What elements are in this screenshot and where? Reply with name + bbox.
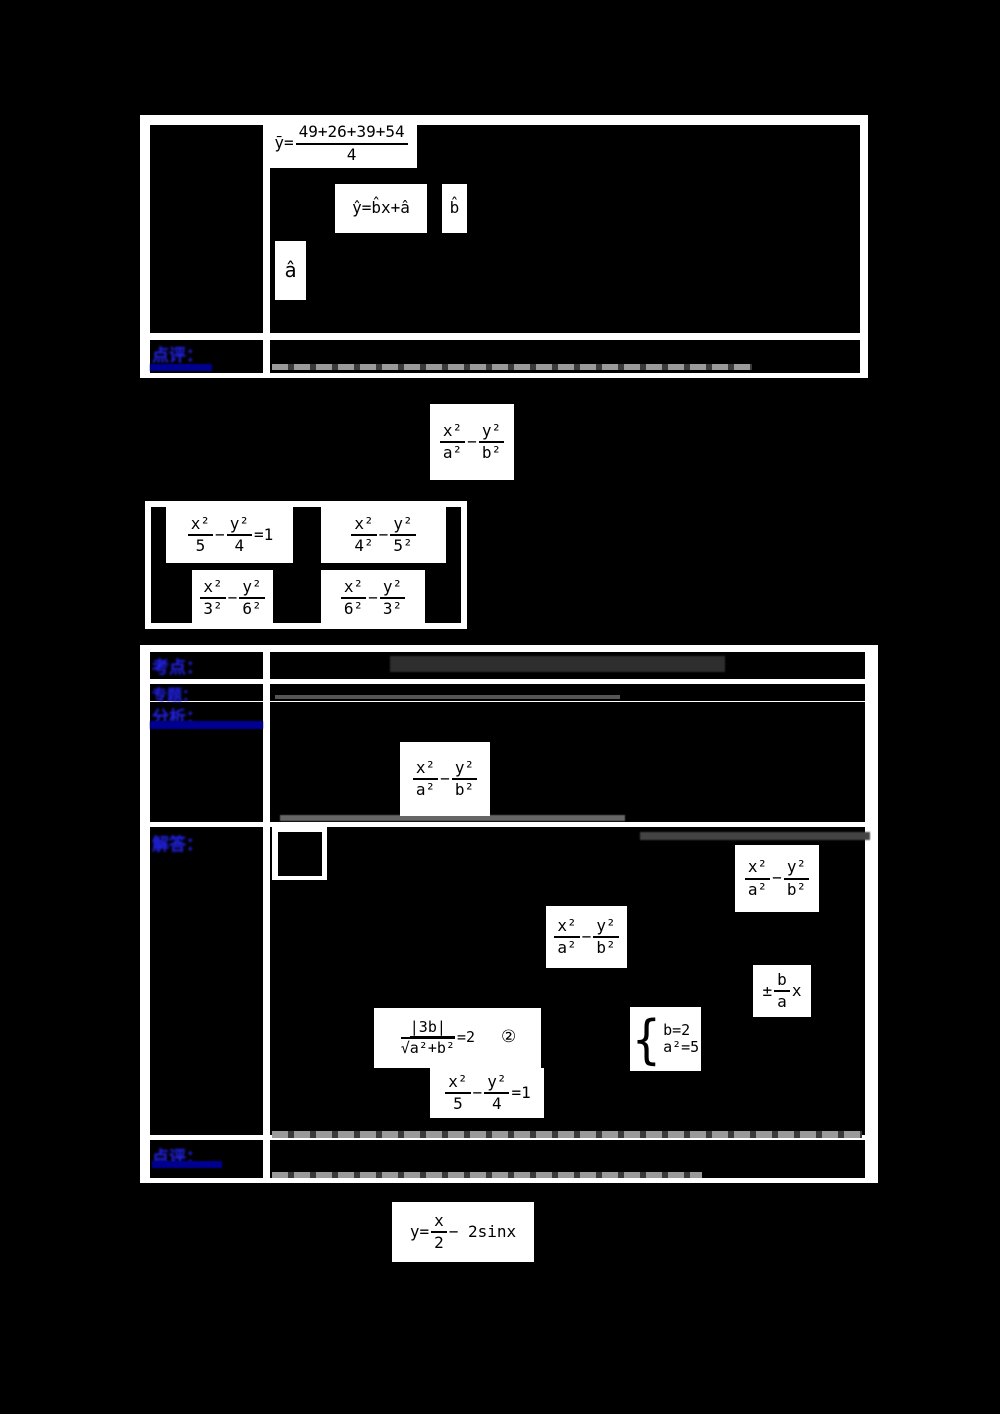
formula-system: {b=2a²=5 xyxy=(630,1007,701,1071)
fraction: x²6² xyxy=(341,578,366,619)
frac-num: y² xyxy=(484,1073,509,1094)
frac-den: a² xyxy=(440,443,465,462)
frac-num: x² xyxy=(440,422,465,443)
option-a-formula: x²5−y²4=1 xyxy=(166,507,293,563)
text-remnant xyxy=(640,832,870,840)
minus-sign: − xyxy=(473,1084,483,1102)
frac-den: b² xyxy=(784,880,809,899)
table2-zhuanti-label: 专题： xyxy=(152,684,197,705)
option-b-formula: x²4²−y²5² xyxy=(321,507,446,563)
frac-den: 6² xyxy=(341,599,366,618)
minus-sign: − xyxy=(215,526,225,544)
table2-label-cell-jieda xyxy=(150,827,263,1135)
fraction: ba xyxy=(774,971,790,1012)
b-hat: b̂ xyxy=(450,199,460,217)
fraction: x²5 xyxy=(445,1073,470,1114)
fraction: |3b|√a²+b² xyxy=(401,1019,455,1058)
formula-result: x²5−y²4=1 xyxy=(430,1068,544,1118)
formula-regression: ŷ=b̂x+â xyxy=(335,184,427,233)
frac-num: y² xyxy=(227,515,252,536)
minus-sign: − xyxy=(467,433,477,451)
frac-num: x xyxy=(431,1212,447,1233)
footer-lhs: y= xyxy=(410,1223,429,1241)
text-remnant xyxy=(272,1172,702,1178)
frac-den: 3² xyxy=(380,599,405,618)
frac-den: b² xyxy=(593,938,618,957)
unrendered-formula-blob xyxy=(278,832,322,876)
plus-minus-sign: ± xyxy=(763,982,773,1000)
table1-label-cell-r1 xyxy=(150,125,263,333)
frac-den: 4 xyxy=(227,536,252,555)
frac-den: b² xyxy=(479,443,504,462)
minus-sign: − xyxy=(772,869,782,887)
frac-den: √a²+b² xyxy=(401,1039,455,1057)
formula-mean: ȳ=49+26+39+544 xyxy=(267,119,417,168)
frac-num: y² xyxy=(784,858,809,879)
system-brace: { xyxy=(632,1009,661,1070)
fraction: y²5² xyxy=(390,515,415,556)
fraction: x²4² xyxy=(351,515,376,556)
formula-solution-hyperbola-2: x²a²−y²b² xyxy=(546,906,627,968)
table1 xyxy=(140,115,868,378)
system-line-1: b=2 xyxy=(663,1022,699,1039)
minus-sign: − xyxy=(379,526,389,544)
formula-a-hat: â xyxy=(275,241,306,300)
frac-num: y² xyxy=(380,578,405,599)
mean-numerator: 49+26+39+54 xyxy=(296,123,408,144)
frac-num: y² xyxy=(593,917,618,938)
frac-den: 5² xyxy=(390,536,415,555)
fraction: y²b² xyxy=(479,422,504,463)
fraction: y²b² xyxy=(784,858,809,899)
fraction: y²b² xyxy=(593,917,618,958)
frac-num: y² xyxy=(452,759,477,780)
frac-den: 5 xyxy=(188,536,213,555)
frac-den: 5 xyxy=(445,1094,470,1113)
fraction: y²b² xyxy=(452,759,477,800)
fraction: y²4 xyxy=(227,515,252,556)
formula-b-hat: b̂ xyxy=(442,184,467,233)
asymptote-variable: x xyxy=(792,982,802,1000)
fraction: x²a² xyxy=(745,858,770,899)
table2-content-cell-fenxi xyxy=(270,702,865,822)
minus-sign: − xyxy=(368,589,378,607)
text-remnant xyxy=(390,656,725,672)
formula-analysis-hyperbola: x²a²−y²b² xyxy=(400,742,490,816)
frac-den: a² xyxy=(554,938,579,957)
fraction: x²5 xyxy=(188,515,213,556)
frac-num: x² xyxy=(554,917,579,938)
text-remnant xyxy=(272,1131,862,1138)
frac-den: 6² xyxy=(239,599,264,618)
fraction: y²3² xyxy=(380,578,405,619)
document-page: 点评： ȳ=49+26+39+544 ŷ=b̂x+â b̂ â x²a²−y²b… xyxy=(0,0,1000,1414)
formula-hyperbola-general: x²a²−y²b² xyxy=(430,404,514,480)
equals-suffix: =1 xyxy=(254,526,273,544)
fraction: x²a² xyxy=(440,422,465,463)
frac-num: y² xyxy=(479,422,504,443)
equation-tag-2: ② xyxy=(501,1028,516,1048)
formula-footer: y=x2− 2sinx xyxy=(392,1202,534,1262)
table1-review-label: 点评： xyxy=(152,341,203,366)
regression-equation: ŷ=b̂x+â xyxy=(352,199,410,217)
system-equations: b=2a²=5 xyxy=(663,1022,699,1057)
frac-den: a xyxy=(774,992,790,1011)
radical-sign: √ xyxy=(401,1039,410,1057)
frac-den: 4² xyxy=(351,536,376,555)
frac-num: y² xyxy=(239,578,264,599)
frac-num: y² xyxy=(390,515,415,536)
fraction: x²3² xyxy=(200,578,225,619)
fraction: x2 xyxy=(431,1212,447,1253)
equals-suffix: =1 xyxy=(511,1084,530,1102)
table2-kaodian-label: 考点： xyxy=(152,653,203,678)
a-hat: â xyxy=(284,259,296,282)
table2-dianping-underline xyxy=(152,1161,222,1168)
formula-focus-distance: |3b|√a²+b²=2② xyxy=(374,1008,541,1068)
frac-num: x² xyxy=(445,1073,470,1094)
table2-fenxi-underline xyxy=(150,721,263,729)
fraction: 49+26+39+544 xyxy=(296,123,408,164)
fraction: x²a² xyxy=(413,759,438,800)
frac-num: b xyxy=(774,971,790,992)
frac-num: x² xyxy=(341,578,366,599)
formula-asymptote: ±bax xyxy=(753,965,811,1017)
footer-rhs: − 2sinx xyxy=(449,1223,516,1241)
system-line-2: a²=5 xyxy=(663,1039,699,1056)
minus-sign: − xyxy=(582,928,592,946)
frac-num: x² xyxy=(188,515,213,536)
text-remnant xyxy=(272,364,752,370)
minus-sign: − xyxy=(440,770,450,788)
fraction: x²a² xyxy=(554,917,579,958)
mean-lhs: ȳ= xyxy=(274,134,293,152)
frac-den: 3² xyxy=(200,599,225,618)
text-remnant xyxy=(275,695,620,699)
frac-num: x² xyxy=(351,515,376,536)
frac-den: 2 xyxy=(431,1233,447,1252)
frac-den: a² xyxy=(413,780,438,799)
minus-sign: − xyxy=(228,589,238,607)
fraction: y²4 xyxy=(484,1073,509,1114)
radicand: a²+b² xyxy=(410,1036,455,1057)
frac-den: 4 xyxy=(484,1094,509,1113)
option-d-formula: x²6²−y²3² xyxy=(321,570,425,626)
table2-jieda-label: 解答： xyxy=(152,830,203,855)
frac-den: a² xyxy=(745,880,770,899)
frac-num: x² xyxy=(413,759,438,780)
equals-suffix: =2 xyxy=(457,1029,475,1046)
fraction: y²6² xyxy=(239,578,264,619)
table1-review-underline xyxy=(150,364,212,371)
option-c-formula: x²3²−y²6² xyxy=(192,570,273,626)
frac-num: x² xyxy=(200,578,225,599)
frac-num: x² xyxy=(745,858,770,879)
frac-den: b² xyxy=(452,780,477,799)
formula-solution-hyperbola-1: x²a²−y²b² xyxy=(735,845,819,912)
mean-denominator: 4 xyxy=(296,145,408,164)
